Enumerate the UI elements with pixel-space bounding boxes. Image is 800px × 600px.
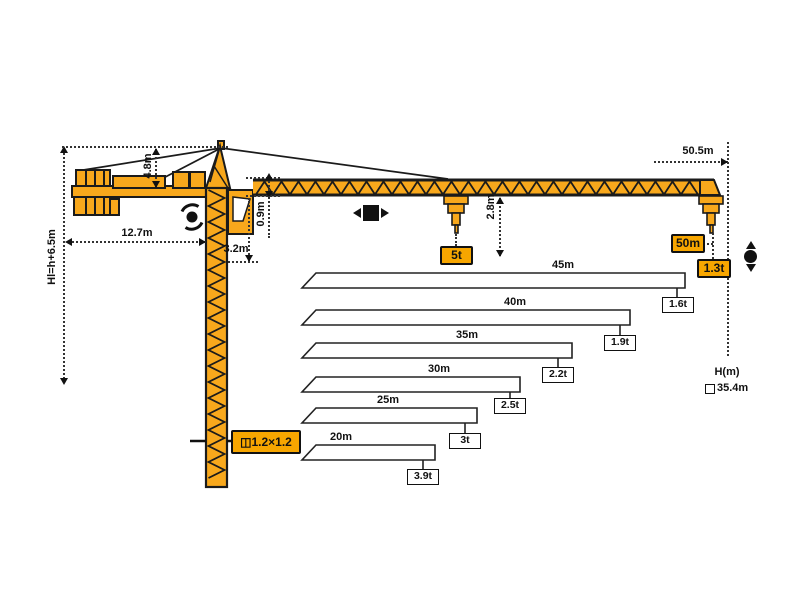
label-tower-head-height: 3.2m <box>206 243 266 255</box>
hook-dot-icon <box>744 250 757 263</box>
bar-length-label: 45m <box>543 259 583 271</box>
height-checkbox-icon <box>705 384 715 394</box>
capacity-box: 3.9t <box>407 469 439 485</box>
arrow-left-icon <box>353 208 361 218</box>
dim-line-hook-headroom <box>499 198 501 256</box>
ext-line-tower-head <box>228 261 258 263</box>
hoist-icon <box>744 241 757 272</box>
arrowhead-right <box>199 238 206 246</box>
capacity-bar-40m <box>302 310 630 325</box>
bar-length-label: 40m <box>495 296 535 308</box>
label-height-formula: Hl=h+6.5m <box>46 213 58 301</box>
dim-line-max-radius <box>654 161 728 163</box>
trolley-hook-tip <box>699 196 723 233</box>
tag-max-capacity: 5t <box>440 246 473 265</box>
mast-section-value: 1.2×1.2 <box>251 435 291 449</box>
leader-line-tip-capacity <box>712 233 714 259</box>
capacity-bar-45m <box>302 273 685 288</box>
tag-mast-section: ◫1.2×1.2 <box>231 430 301 454</box>
slewing-icon <box>182 205 202 229</box>
capacity-bar-35m <box>302 343 572 358</box>
pendant-line-jib <box>221 148 448 179</box>
crane-spec-diagram: Hl=h+6.5m 4.8m 12.7m 3.2m 0.9m 2.8m 50.5… <box>0 0 800 600</box>
trolley-travel-icon <box>353 205 389 221</box>
dim-line-jib-depth <box>268 178 270 238</box>
tag-tip-capacity: 1.3t <box>697 259 731 278</box>
height-unit-label: H(m) <box>697 366 757 378</box>
dim-line-counterjib <box>67 241 206 243</box>
bar-length-label: 35m <box>447 329 487 341</box>
capacity-box: 1.9t <box>604 335 636 351</box>
arrow-down-icon <box>746 264 756 272</box>
arrow-right-icon <box>381 208 389 218</box>
trolley-hook-mid <box>444 196 468 233</box>
arrowhead-up <box>265 173 273 180</box>
main-jib <box>253 179 714 196</box>
capacity-bar-30m <box>302 377 520 392</box>
label-max-radius: 50.5m <box>668 145 728 157</box>
bar-length-label: 30m <box>419 363 459 375</box>
label-apex-height: 4.8m <box>142 144 154 188</box>
bar-length-label: 25m <box>368 394 408 406</box>
label-counterjib-length: 12.7m <box>107 227 167 239</box>
leader-line-max-capacity <box>455 234 457 246</box>
arrowhead-up <box>496 197 504 204</box>
arrowhead-down <box>60 378 68 385</box>
arrow-up-icon <box>746 241 756 249</box>
arrowhead-left <box>65 238 72 246</box>
capacity-bar-20m <box>302 445 435 460</box>
arrowhead-down <box>496 250 504 257</box>
bar-length-label: 20m <box>321 431 361 443</box>
capacity-box: 2.2t <box>542 367 574 383</box>
label-hook-headroom: 2.8m <box>485 185 497 229</box>
ext-line-jib-top <box>246 177 280 179</box>
tag-tip-radius: 50m <box>671 234 705 253</box>
capacity-bar-25m <box>302 408 477 423</box>
jib-tip <box>700 180 720 195</box>
ref-line-jib-tip <box>727 142 729 356</box>
height-value: 35.4m <box>717 382 761 394</box>
label-jib-depth: 0.9m <box>255 192 267 236</box>
trolley-square-icon <box>363 205 379 221</box>
capacity-box: 3t <box>449 433 481 449</box>
capacity-box: 1.6t <box>662 297 694 313</box>
capacity-box: 2.5t <box>494 398 526 414</box>
dim-line-total-height <box>63 150 65 382</box>
section-symbol-icon: ◫ <box>240 435 251 449</box>
